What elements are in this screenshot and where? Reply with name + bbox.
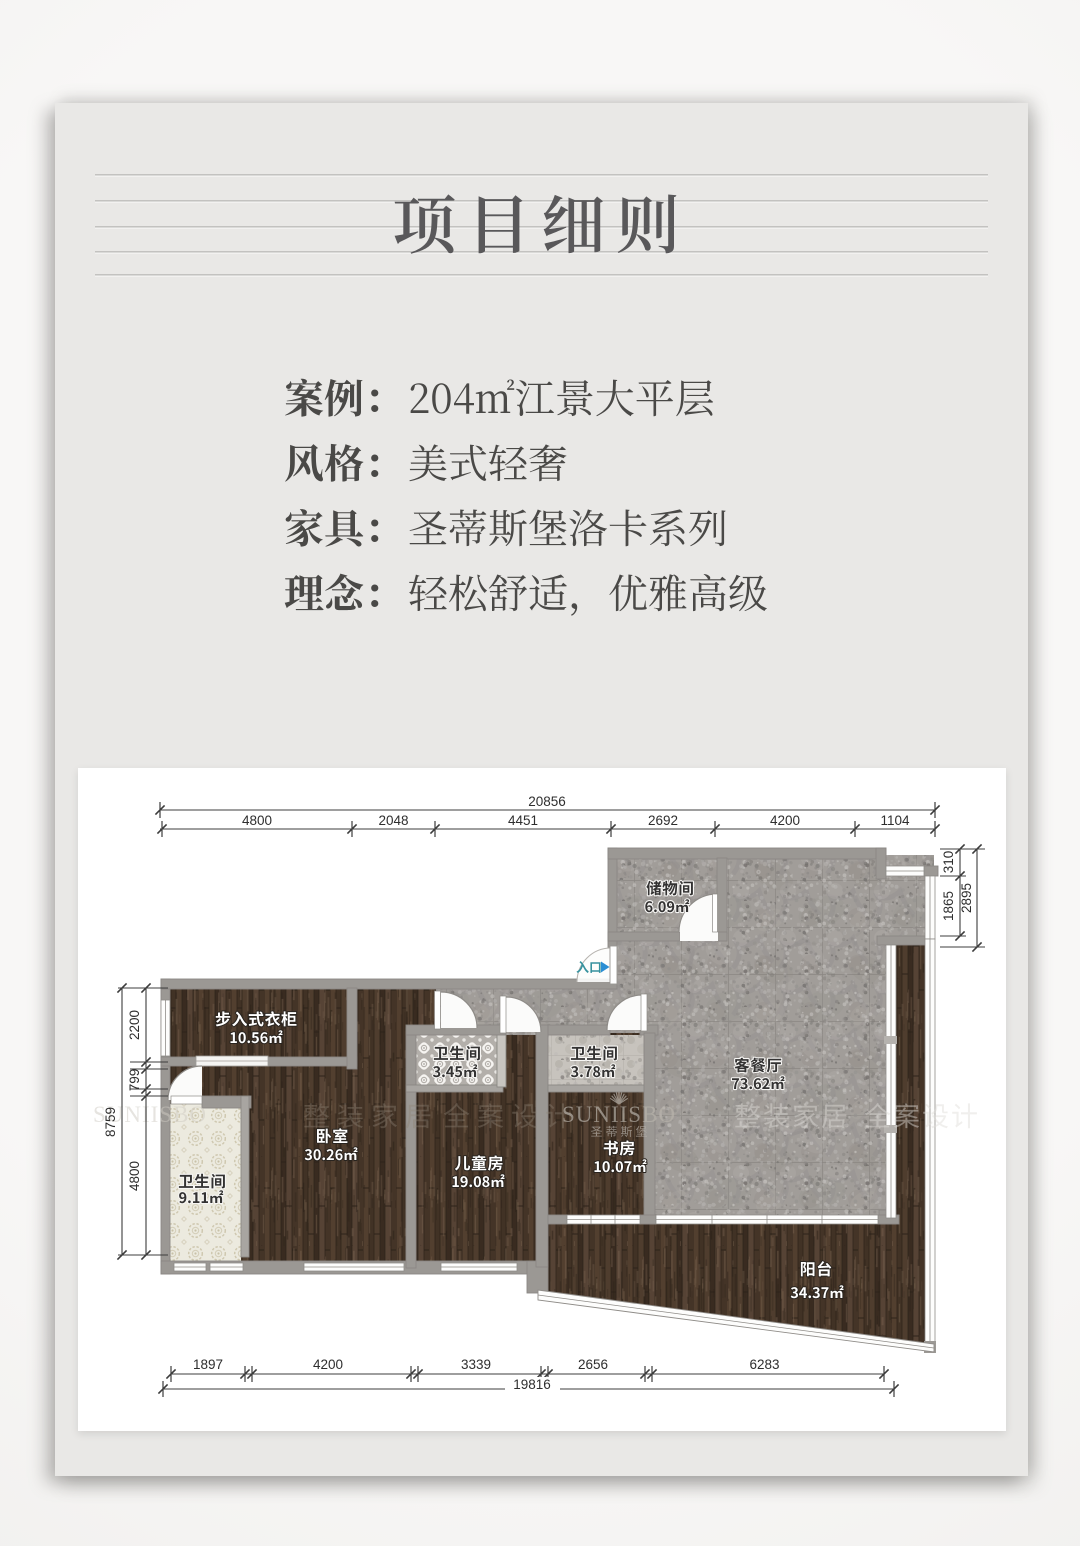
svg-text:6283: 6283 (749, 1357, 779, 1372)
svg-text:2656: 2656 (578, 1357, 608, 1372)
svg-text:19816: 19816 (513, 1377, 551, 1392)
svg-text:2692: 2692 (648, 813, 678, 828)
svg-text:SUNIISBO: SUNIISBO (562, 1102, 676, 1127)
svg-text:8759: 8759 (103, 1107, 118, 1137)
svg-text:2048: 2048 (378, 813, 408, 828)
svg-text:4800: 4800 (127, 1161, 142, 1191)
svg-text:4451: 4451 (508, 813, 538, 828)
svg-text:20856: 20856 (528, 794, 566, 809)
svg-text:3339: 3339 (461, 1357, 491, 1372)
svg-text:2200: 2200 (127, 1010, 142, 1040)
svg-text:1897: 1897 (193, 1357, 223, 1372)
svg-text:310: 310 (941, 851, 956, 874)
svg-text:4200: 4200 (770, 813, 800, 828)
svg-text:1104: 1104 (880, 813, 910, 828)
svg-text:2895: 2895 (959, 883, 974, 913)
svg-text:799: 799 (127, 1069, 142, 1092)
svg-text:4200: 4200 (313, 1357, 343, 1372)
svg-text:4800: 4800 (242, 813, 272, 828)
svg-text:1865: 1865 (941, 891, 956, 921)
